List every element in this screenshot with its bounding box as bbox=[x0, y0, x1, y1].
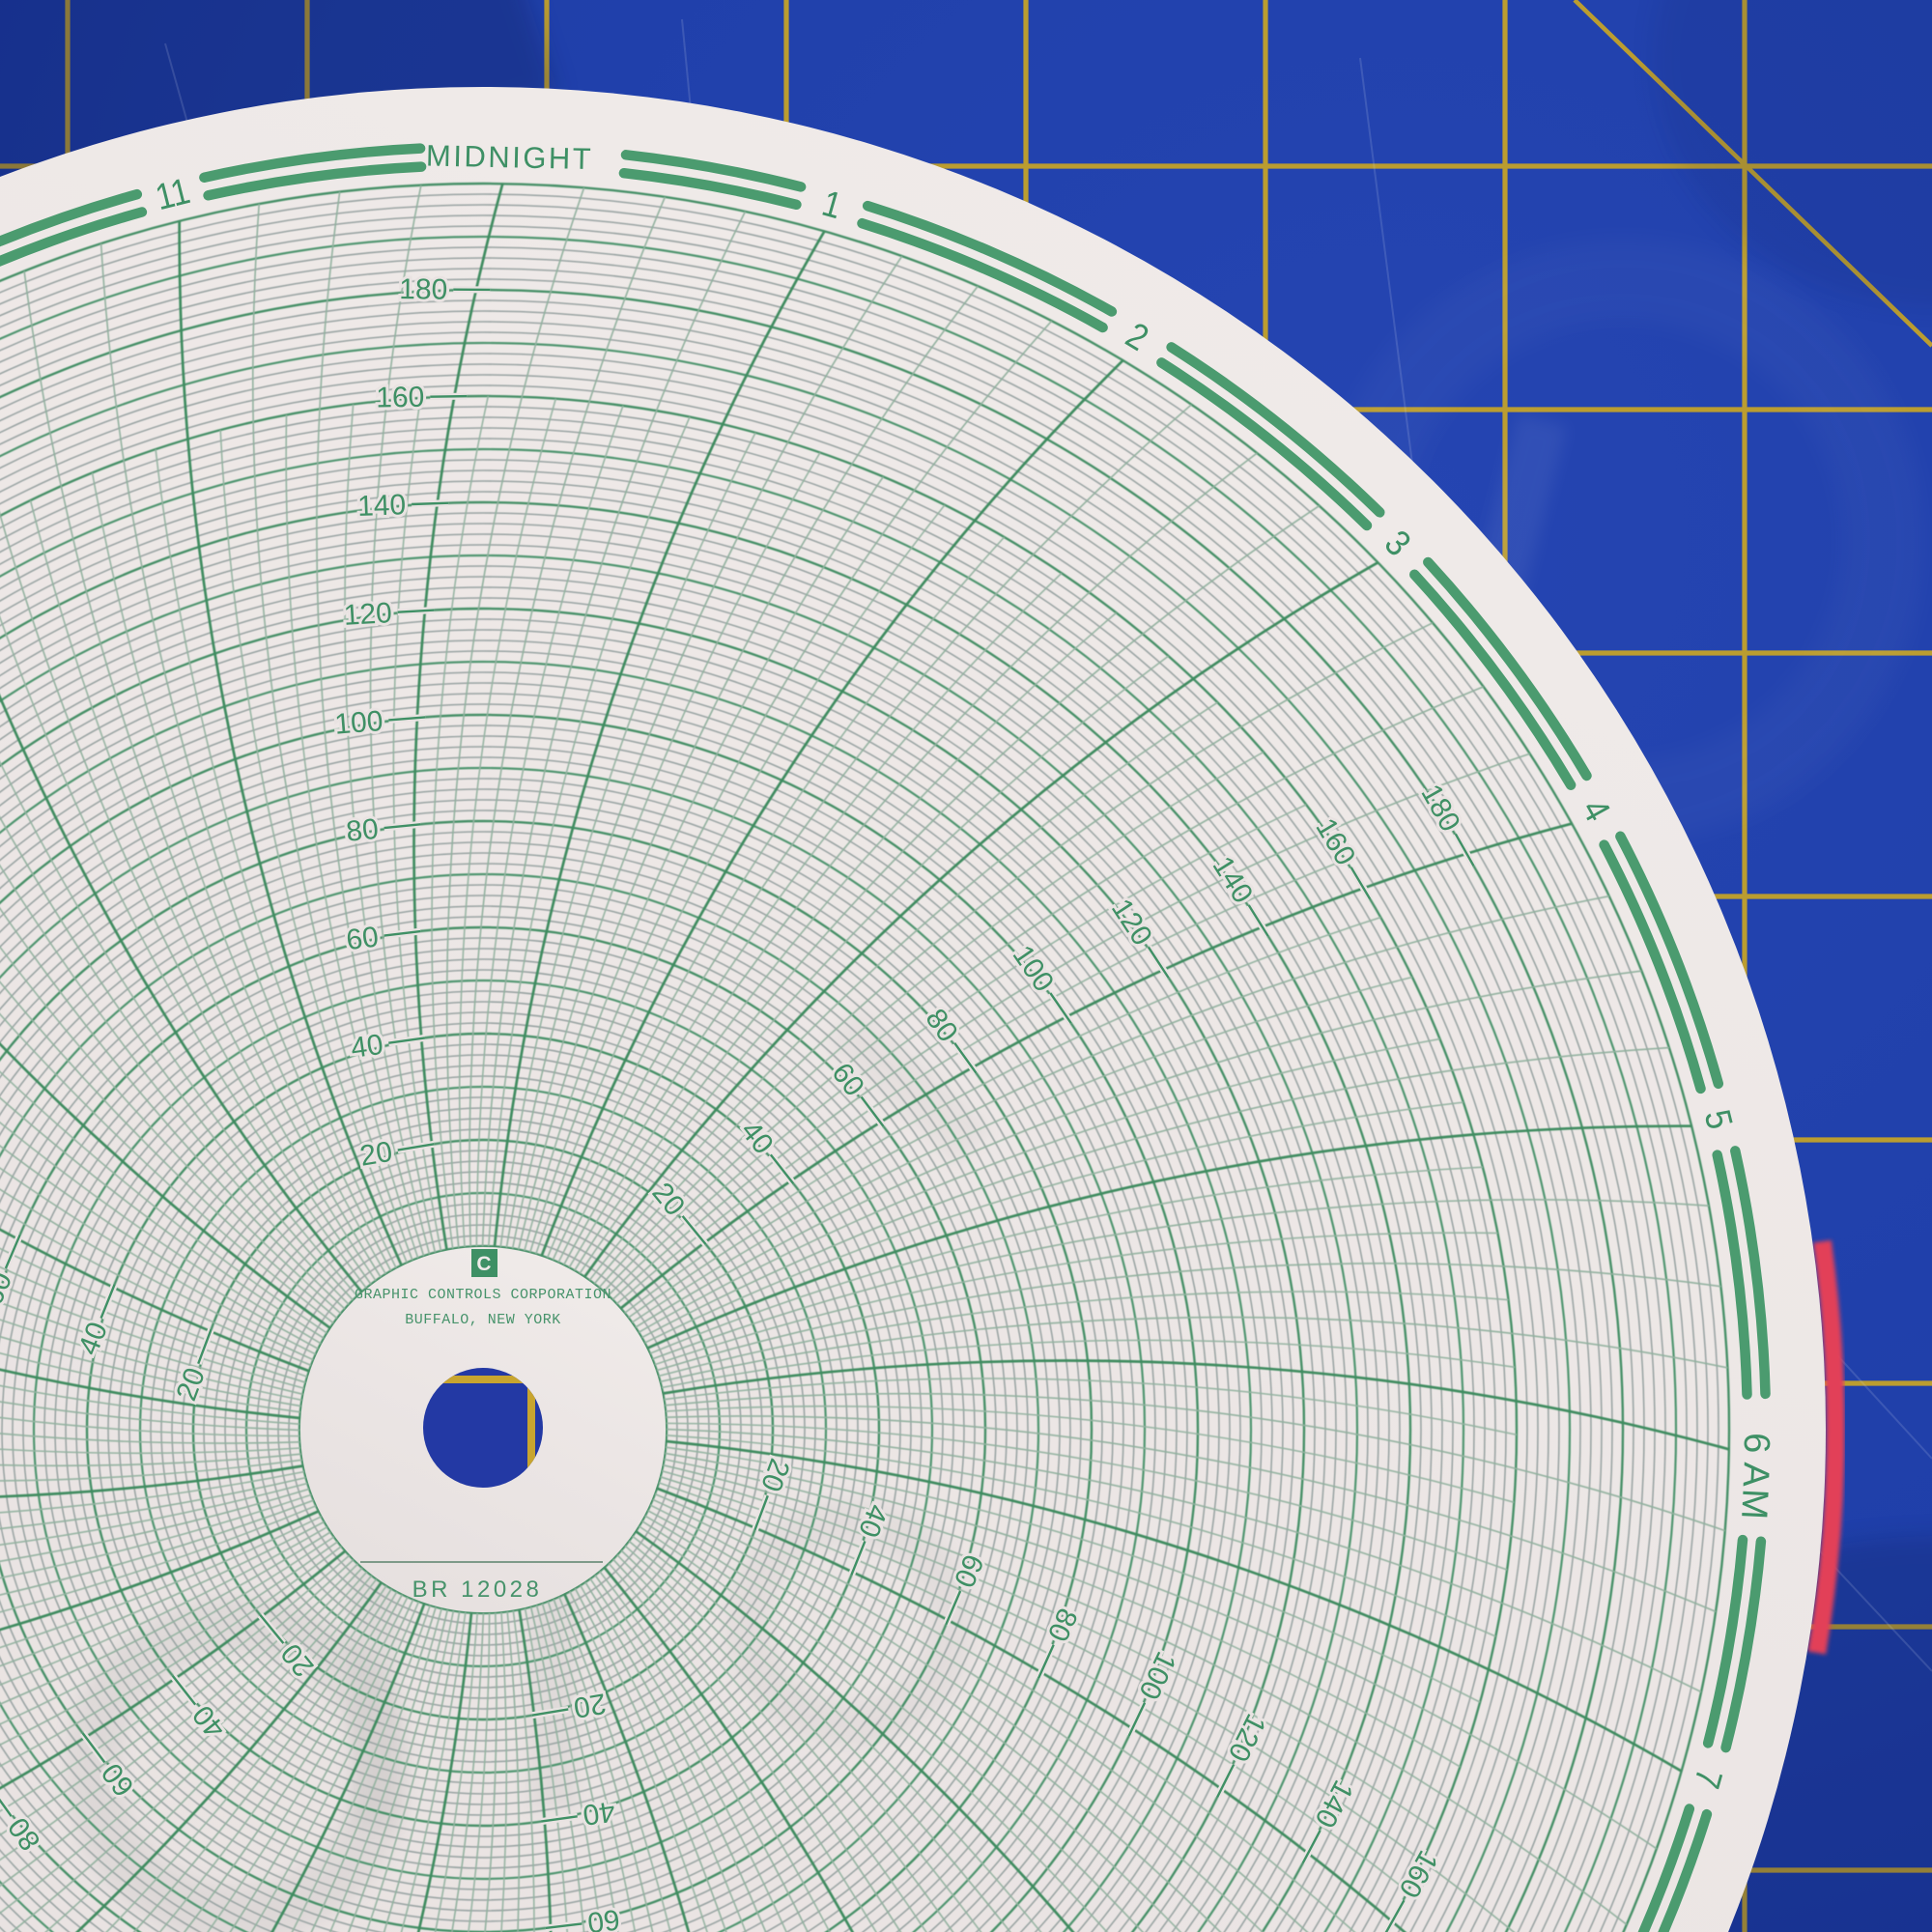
svg-text:180: 180 bbox=[399, 273, 447, 305]
svg-text:BR 12028: BR 12028 bbox=[412, 1577, 543, 1603]
svg-text:60: 60 bbox=[585, 1903, 621, 1932]
svg-text:120: 120 bbox=[343, 597, 393, 632]
svg-text:GRAPHIC CONTROLS CORPORATION: GRAPHIC CONTROLS CORPORATION bbox=[355, 1287, 611, 1303]
svg-text:BUFFALO, NEW YORK: BUFFALO, NEW YORK bbox=[405, 1312, 561, 1328]
svg-text:AM: AM bbox=[1733, 1462, 1776, 1522]
svg-text:20: 20 bbox=[571, 1687, 608, 1723]
svg-text:80: 80 bbox=[345, 813, 380, 848]
svg-text:C: C bbox=[476, 1253, 491, 1275]
svg-text:6: 6 bbox=[1736, 1433, 1776, 1454]
svg-text:40: 40 bbox=[581, 1795, 617, 1831]
svg-text:160: 160 bbox=[376, 382, 425, 414]
svg-text:60: 60 bbox=[345, 921, 381, 956]
svg-text:MIDNIGHT: MIDNIGHT bbox=[426, 138, 594, 176]
svg-text:100: 100 bbox=[333, 705, 384, 741]
svg-text:140: 140 bbox=[357, 489, 407, 523]
svg-text:40: 40 bbox=[349, 1029, 385, 1065]
svg-text:20: 20 bbox=[357, 1136, 394, 1173]
